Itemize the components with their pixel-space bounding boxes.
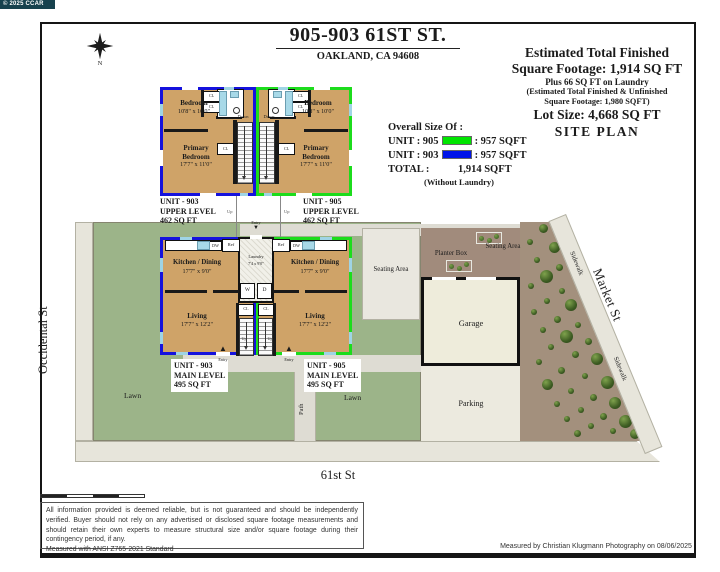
bush-icon — [544, 298, 550, 304]
disclaimer-text: All information provided is deemed relia… — [46, 506, 358, 545]
legend-row-903: UNIT : 903: 957 SQFT — [388, 149, 558, 163]
page-subtitle: OAKLAND, CA 94608 — [203, 51, 533, 62]
bush-icon — [554, 401, 560, 407]
plant-icon — [479, 236, 484, 241]
bush-icon — [574, 430, 581, 437]
unit905-upper-floorplan — [256, 87, 352, 196]
sidewalk-south — [75, 441, 660, 462]
bush-icon — [556, 264, 563, 271]
plant-icon — [457, 266, 462, 271]
compass-rose-icon — [86, 32, 114, 65]
attribution-text: Measured by Christian Klugmann Photograp… — [498, 543, 694, 550]
legend-heading: Overall Size Of : — [388, 121, 558, 135]
floorplan-page: © 2025 CCAR N 905-903 61ST ST. OAKLAND, … — [0, 0, 720, 572]
legend-total-label: TOTAL : — [388, 164, 429, 175]
planter-box — [446, 260, 472, 272]
title-block: 905-903 61ST ST. OAKLAND, CA 94608 — [203, 24, 533, 62]
bush-icon — [568, 388, 574, 394]
bush-icon — [600, 413, 607, 420]
seating-area-center — [362, 228, 420, 320]
legend-total-value: 1,914 SQFT — [458, 164, 512, 175]
garage-label: Garage — [447, 318, 495, 328]
summary-line: Square Footage: 1,980 SQFT) — [500, 97, 694, 107]
planter-box-label: Planter Box — [424, 250, 478, 257]
disclaimer-box: All information provided is deemed relia… — [40, 502, 364, 549]
bush-icon — [564, 416, 570, 422]
legend-total: TOTAL : 1,914 SQFT — [388, 163, 558, 177]
bush-icon — [542, 379, 553, 390]
lawn-label: Lawn — [344, 393, 378, 402]
seating-area-ne-label: Seating Area — [484, 243, 522, 252]
up-label: Up — [284, 209, 296, 215]
bush-icon — [540, 270, 553, 283]
sidewalk-west — [75, 222, 93, 441]
bush-icon — [590, 394, 597, 401]
bush-icon — [560, 330, 573, 343]
up-label: Up — [227, 209, 239, 215]
legend-row-label: UNIT : 905 — [388, 136, 439, 147]
shared-laundry-room — [238, 237, 274, 303]
summary-line: Estimated Total Finished — [500, 45, 694, 61]
bush-icon — [534, 257, 540, 263]
unit903-color-swatch — [442, 150, 472, 159]
lawn-label: Lawn — [124, 391, 158, 400]
bush-icon — [585, 338, 592, 345]
bush-icon — [582, 373, 588, 379]
bush-icon — [540, 327, 546, 333]
plant-icon — [494, 234, 499, 239]
plant-icon — [464, 262, 469, 267]
bush-icon — [575, 322, 581, 328]
bush-icon — [548, 344, 554, 350]
path-label: Path — [298, 392, 312, 426]
summary-line: Square Footage: 1,914 SQ FT — [500, 61, 694, 77]
bush-icon — [554, 316, 561, 323]
bush-icon — [527, 239, 533, 245]
bush-icon — [528, 283, 534, 289]
legend-row-value: : 957 SQFT — [475, 136, 527, 147]
sidewalk-label: Sidewalk — [568, 250, 584, 276]
bush-icon — [558, 367, 565, 374]
bush-icon — [559, 288, 565, 294]
unit903-upper-floorplan — [160, 87, 256, 196]
front-walkway — [183, 355, 421, 372]
level-connector-line — [280, 196, 281, 237]
unit905-color-swatch — [442, 136, 472, 145]
bush-icon — [539, 224, 548, 233]
legend-note: (Without Laundry) — [424, 177, 558, 187]
page-title: 905-903 61ST ST. — [276, 24, 461, 49]
plant-icon — [449, 264, 454, 269]
summary-line: (Estimated Total Finished & Unfinished — [500, 87, 694, 97]
61st-st-label: 61st St — [298, 468, 378, 483]
bush-icon — [572, 351, 579, 358]
seating-area-label: Seating Area — [362, 266, 420, 273]
legend-row-905: UNIT : 905: 957 SQFT — [388, 135, 558, 149]
legend-row-label: UNIT : 903 — [388, 150, 439, 161]
sidewalk-label: Sidewalk — [612, 356, 628, 382]
bush-icon — [588, 423, 594, 429]
bush-icon — [536, 359, 542, 365]
ccar-watermark: © 2025 CCAR — [0, 0, 55, 9]
scale-bar — [40, 494, 145, 498]
occidental-st-label: Occidental St — [36, 288, 52, 392]
bush-icon — [591, 353, 603, 365]
bush-icon — [610, 428, 616, 434]
legend-row-value: : 957 SQFT — [475, 150, 527, 161]
level-connector-line — [236, 196, 237, 237]
parking-label: Parking — [447, 399, 495, 408]
bush-icon — [609, 397, 621, 409]
bush-icon — [531, 309, 537, 315]
bush-icon — [601, 376, 614, 389]
bush-icon — [578, 407, 584, 413]
bush-icon — [565, 299, 577, 311]
summary-line: Plus 66 SQ FT on Laundry — [500, 77, 694, 87]
overall-size-legend: Overall Size Of : UNIT : 905: 957 SQFT U… — [388, 121, 558, 187]
ansi-standard-text: Measured with ANSI Z765-2021 Standard — [46, 545, 358, 555]
